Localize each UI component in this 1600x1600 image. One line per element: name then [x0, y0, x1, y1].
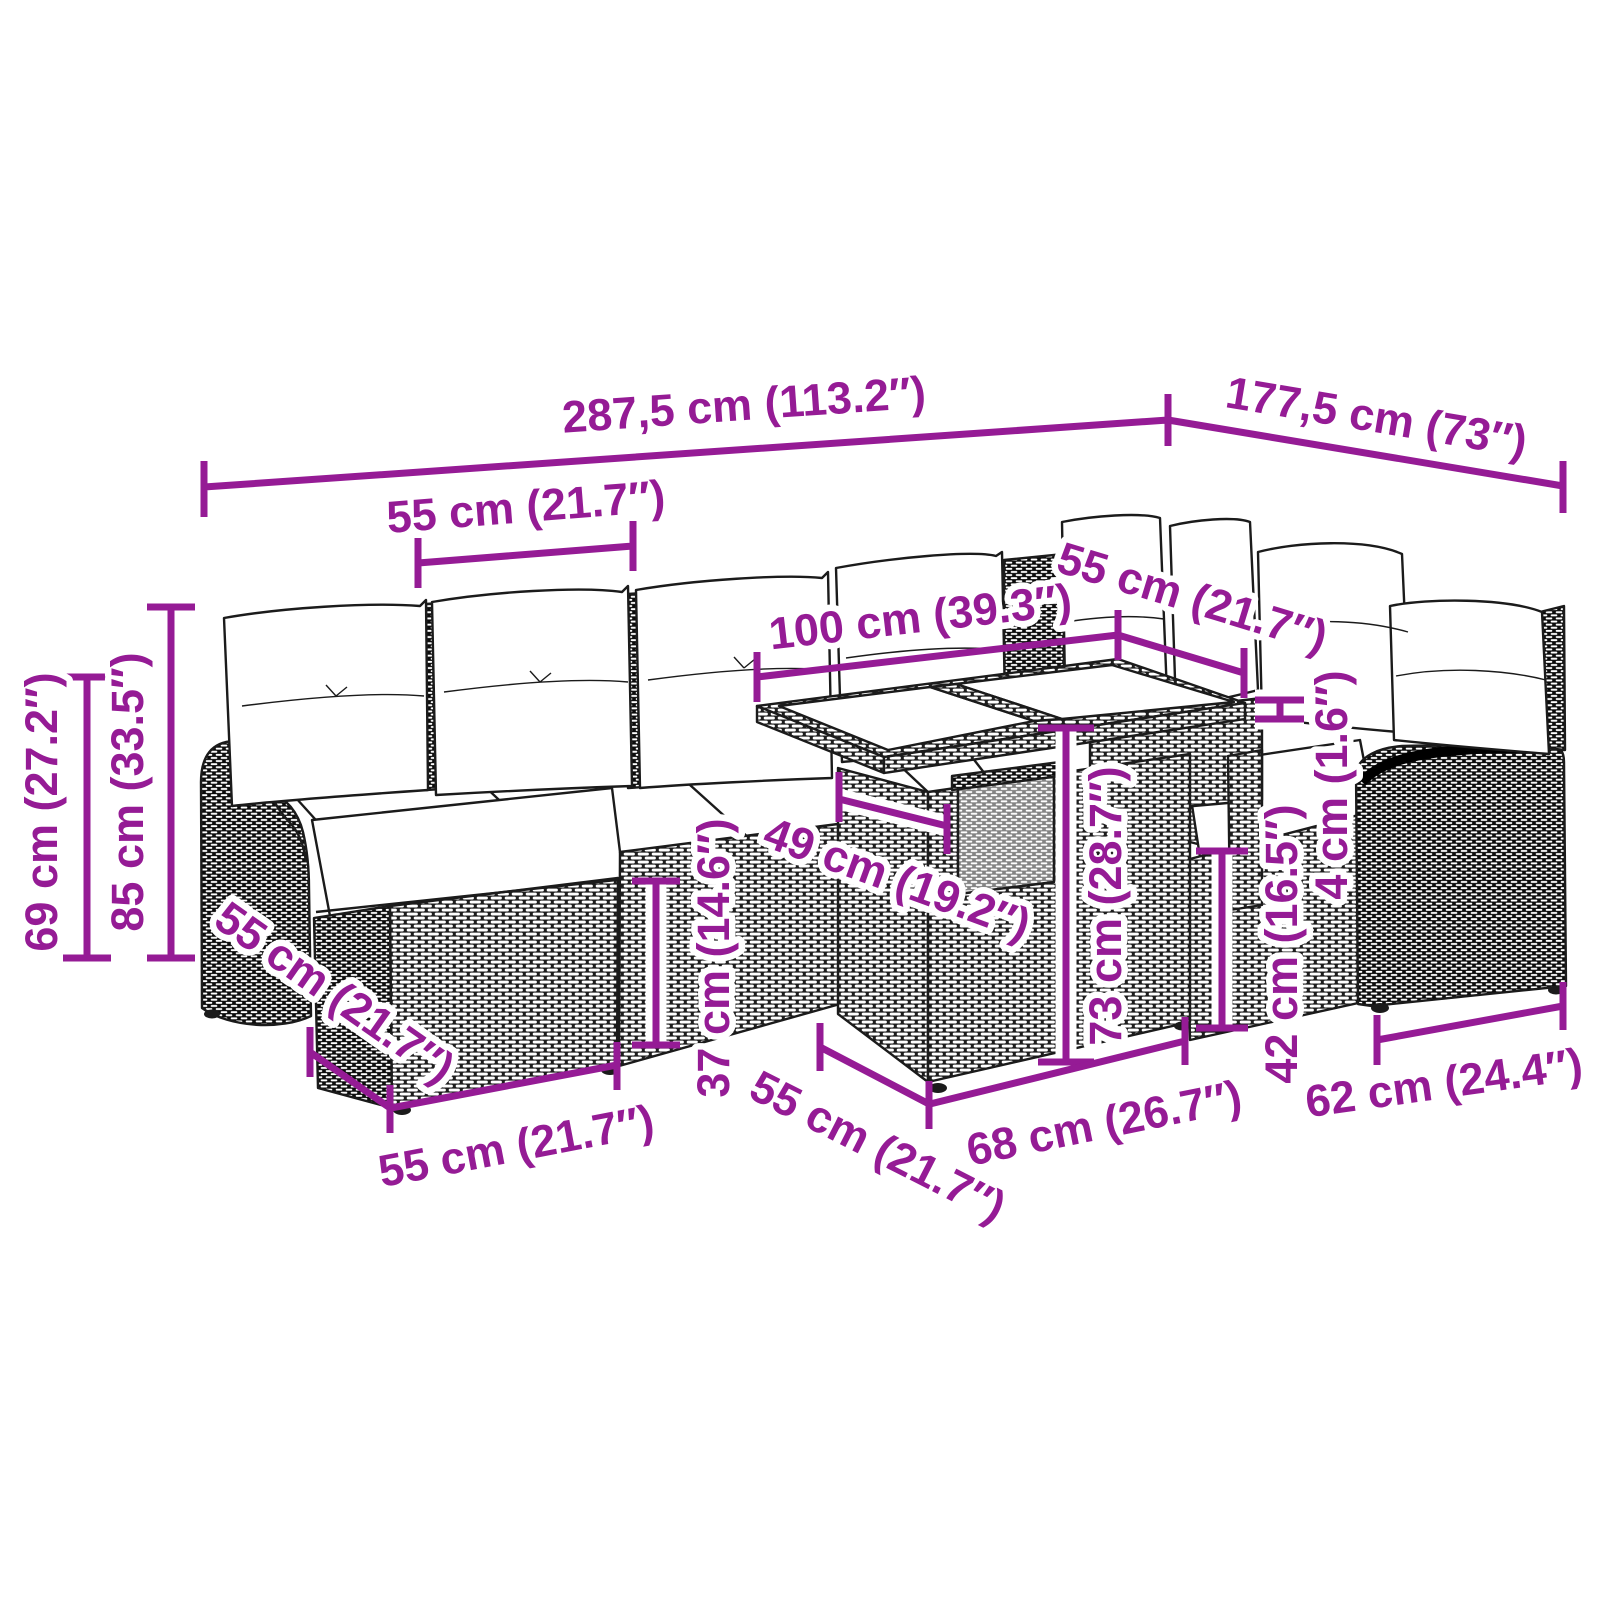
svg-text:73 cm (28.7″): 73 cm (28.7″) — [1080, 766, 1131, 1045]
svg-text:42 cm (16.5″): 42 cm (16.5″) — [1256, 804, 1307, 1083]
svg-text:85 cm (33.5″): 85 cm (33.5″) — [102, 652, 153, 931]
svg-text:37 cm (14.6″): 37 cm (14.6″) — [688, 818, 739, 1097]
svg-text:69 cm (27.2″): 69 cm (27.2″) — [16, 672, 67, 951]
svg-text:4 cm (1.6″): 4 cm (1.6″) — [1306, 670, 1357, 899]
